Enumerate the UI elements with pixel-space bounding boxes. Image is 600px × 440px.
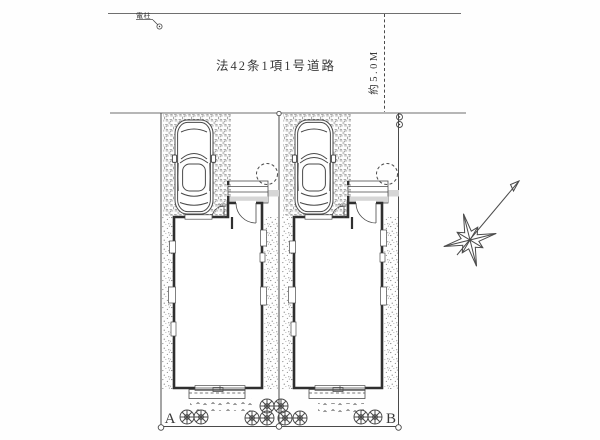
car-icon bbox=[172, 120, 215, 214]
survey-marker-icon bbox=[396, 425, 402, 431]
survey-marker-icon bbox=[276, 424, 282, 430]
survey-marker-icon bbox=[277, 111, 281, 115]
corner-pole-icon bbox=[397, 114, 403, 128]
tree-icon bbox=[180, 410, 194, 424]
tree-icon bbox=[354, 410, 368, 424]
road-label: 法42条1項1号道路 bbox=[216, 58, 336, 73]
grass-area-b bbox=[318, 403, 364, 416]
survey-marker-icon bbox=[158, 425, 164, 431]
car-icon bbox=[292, 120, 335, 214]
tree-icon bbox=[278, 411, 292, 425]
lot-b bbox=[283, 114, 400, 399]
lot-a-label: A bbox=[165, 411, 176, 427]
tree-icon bbox=[194, 410, 208, 424]
tree-icon bbox=[245, 411, 259, 425]
grass-area-a bbox=[190, 398, 252, 411]
tree-icon bbox=[293, 411, 307, 425]
site-plan-drawing: 法42条1項1号道路 約5.0M 電柱 935 A bbox=[0, 0, 600, 440]
north-needle bbox=[457, 181, 519, 255]
tree-icon bbox=[260, 411, 274, 425]
boundary-tree-cluster bbox=[245, 399, 307, 425]
tree-icon bbox=[368, 410, 382, 424]
entry-dim-label-a: 935 bbox=[218, 203, 226, 209]
utility-pole-label: 電柱 bbox=[136, 11, 151, 20]
compass-rose-icon bbox=[437, 181, 519, 273]
entry-dim-label-b: 935 bbox=[338, 203, 346, 209]
road-area: 法42条1項1号道路 約5.0M 電柱 bbox=[108, 11, 466, 128]
lot-a bbox=[163, 114, 280, 399]
lot-b-label: B bbox=[386, 411, 396, 427]
site-plan-canvas: 法42条1項1号道路 約5.0M 電柱 935 A bbox=[0, 0, 600, 440]
road-width-label: 約5.0M bbox=[367, 49, 380, 94]
